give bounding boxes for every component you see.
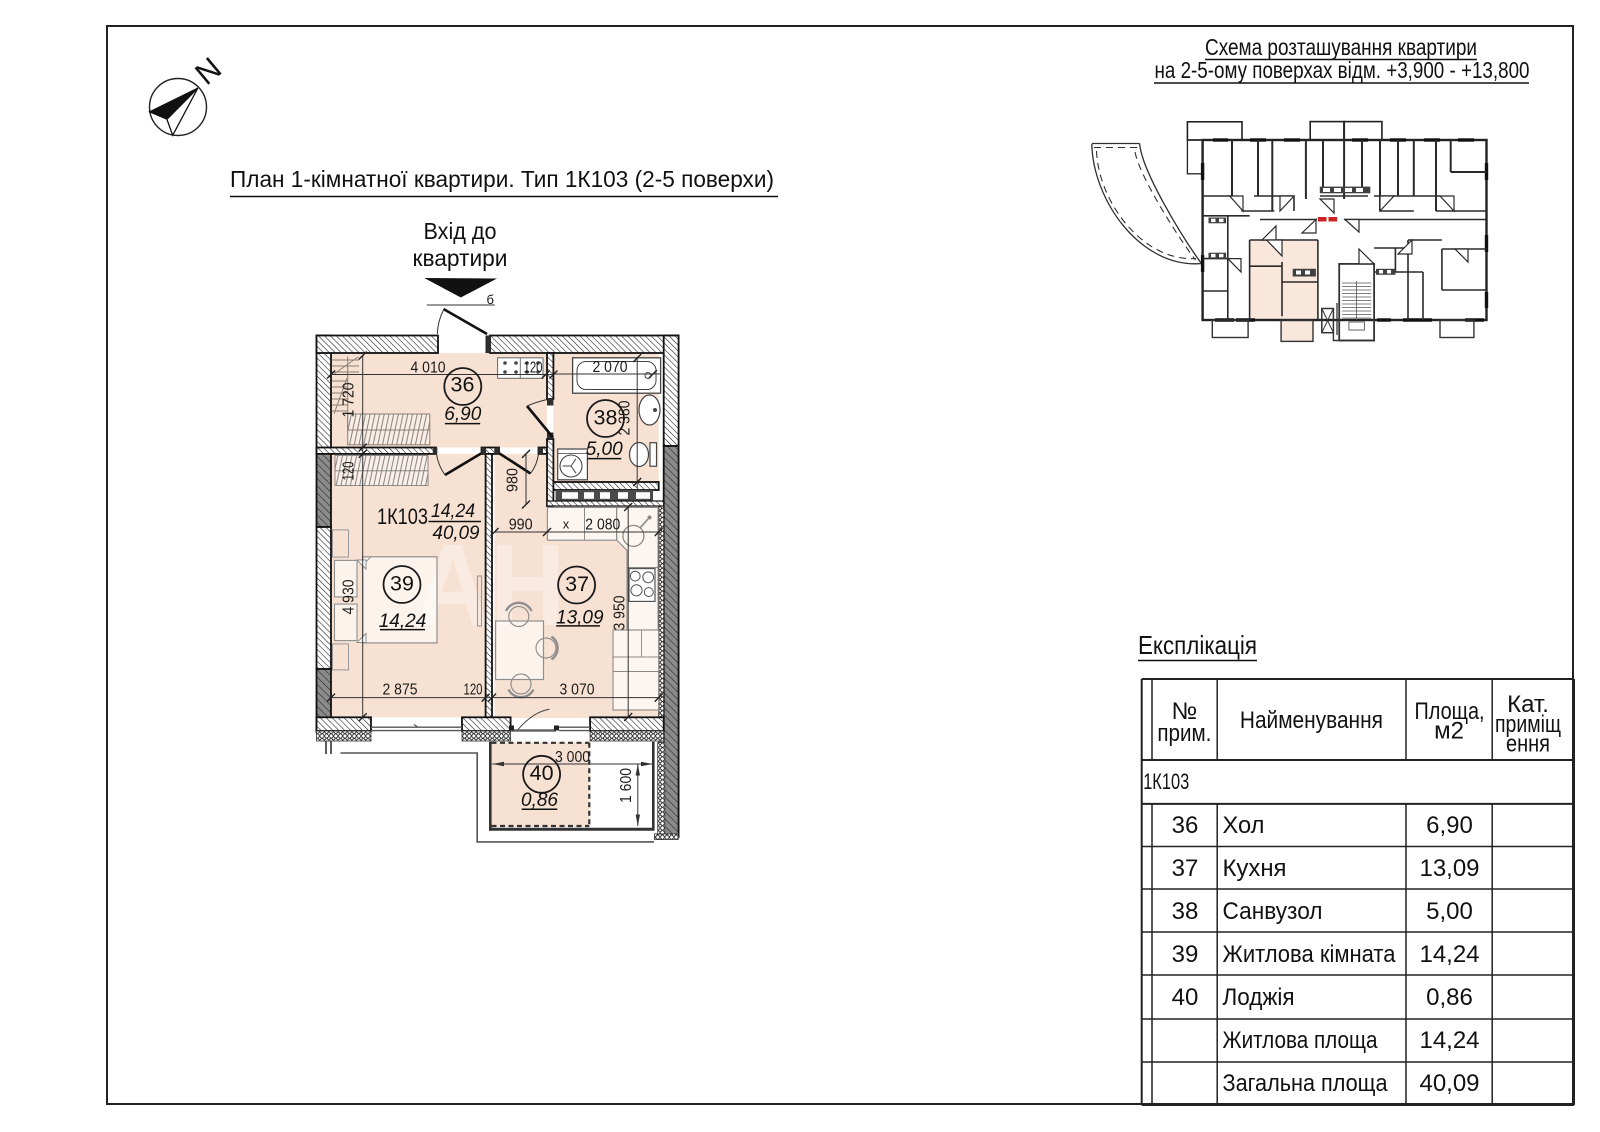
svg-text:14,24: 14,24 — [1419, 1027, 1479, 1054]
svg-text:40,09: 40,09 — [1419, 1070, 1479, 1097]
svg-text:2 875: 2 875 — [383, 682, 418, 699]
svg-text:N: N — [188, 50, 228, 91]
svg-text:36: 36 — [451, 373, 475, 397]
svg-text:4 010: 4 010 — [411, 359, 446, 376]
svg-text:40: 40 — [1172, 984, 1199, 1011]
svg-text:б: б — [487, 292, 494, 307]
svg-text:13,09: 13,09 — [1419, 855, 1479, 882]
svg-text:квартири: квартири — [413, 245, 508, 271]
svg-text:38: 38 — [1172, 898, 1199, 925]
svg-text:1 600: 1 600 — [618, 768, 635, 803]
svg-text:0,86: 0,86 — [1426, 984, 1473, 1011]
svg-text:1К103: 1К103 — [377, 504, 428, 529]
svg-text:Санвузол: Санвузол — [1223, 898, 1323, 925]
svg-text:2 070: 2 070 — [593, 359, 628, 376]
svg-text:Житлова кімната: Житлова кімната — [1223, 941, 1397, 968]
svg-text:6,90: 6,90 — [1426, 812, 1473, 839]
svg-text:м2: м2 — [1434, 718, 1464, 745]
svg-text:6,90: 6,90 — [444, 404, 481, 425]
svg-text:ення: ення — [1506, 731, 1550, 758]
svg-text:14,24: 14,24 — [1419, 941, 1479, 968]
svg-text:4 930: 4 930 — [341, 579, 358, 614]
svg-text:Експлікація: Експлікація — [1138, 630, 1257, 660]
svg-text:40,09: 40,09 — [433, 523, 480, 544]
svg-text:на 2-5-ому поверхах відм. +3,9: на 2-5-ому поверхах відм. +3,900 - +13,8… — [1155, 57, 1530, 83]
svg-text:1К103: 1К103 — [1143, 769, 1189, 794]
svg-text:40: 40 — [530, 761, 554, 785]
svg-text:Хол: Хол — [1223, 812, 1265, 839]
svg-text:14,24: 14,24 — [379, 611, 427, 632]
svg-text:0,86: 0,86 — [521, 790, 558, 811]
svg-text:3 070: 3 070 — [560, 682, 595, 699]
svg-text:Найменування: Найменування — [1240, 707, 1383, 734]
svg-text:37: 37 — [1172, 855, 1199, 882]
svg-text:Кухня: Кухня — [1223, 855, 1287, 882]
svg-text:120: 120 — [341, 461, 358, 480]
svg-text:План 1-кімнатної квартири. Тип: План 1-кімнатної квартири. Тип 1К103 (2-… — [230, 166, 774, 192]
svg-text:3 950: 3 950 — [612, 595, 629, 630]
svg-text:х: х — [563, 517, 570, 532]
svg-text:5,00: 5,00 — [586, 439, 623, 460]
svg-text:120: 120 — [524, 359, 543, 376]
svg-text:36: 36 — [1172, 812, 1199, 839]
svg-text:39: 39 — [390, 571, 414, 595]
svg-text:Загальна площа: Загальна площа — [1223, 1070, 1389, 1097]
svg-text:прим.: прим. — [1157, 720, 1211, 747]
svg-text:980: 980 — [505, 468, 522, 492]
svg-text:37: 37 — [565, 572, 589, 596]
svg-text:38: 38 — [594, 405, 618, 429]
svg-text:5,00: 5,00 — [1426, 898, 1473, 925]
svg-text:Житлова площа: Житлова площа — [1223, 1027, 1379, 1054]
svg-text:3 000: 3 000 — [555, 749, 590, 766]
svg-text:39: 39 — [1172, 941, 1199, 968]
svg-text:1 720: 1 720 — [341, 382, 358, 417]
svg-text:120: 120 — [464, 682, 483, 699]
svg-text:Лоджія: Лоджія — [1223, 984, 1295, 1011]
svg-text:Вхід до: Вхід до — [424, 218, 497, 244]
svg-text:2 080: 2 080 — [585, 517, 620, 534]
svg-text:14,24: 14,24 — [431, 501, 475, 522]
svg-text:990: 990 — [509, 517, 533, 534]
